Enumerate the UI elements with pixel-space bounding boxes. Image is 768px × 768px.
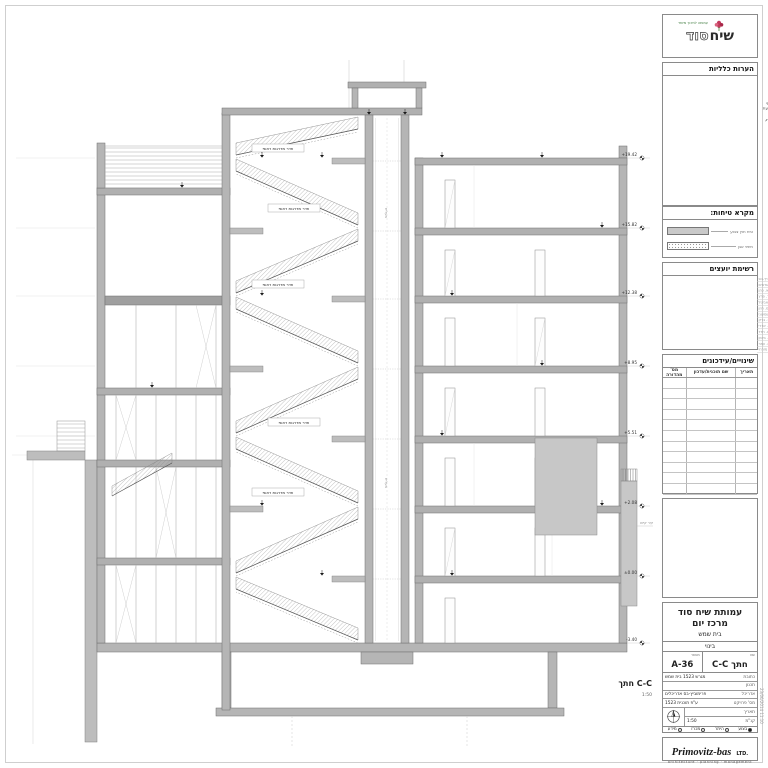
level-value: +19.42 xyxy=(622,152,638,157)
sheet-number-label: מספר xyxy=(691,653,700,657)
side-note: קיר קיים xyxy=(640,521,653,525)
revision-cell xyxy=(735,378,757,388)
radio-label: מכרז xyxy=(691,727,700,732)
scale-row: קנ"מ 1:50 xyxy=(685,717,757,726)
legend-leader-line xyxy=(711,231,728,232)
revision-row xyxy=(663,442,757,453)
consultants-box: רשימת יועצים אדריכלותפרימוביץ-בסקונסטרוק… xyxy=(662,262,758,350)
sheet-name-number-row: שם חתך C-C מספר A-36 xyxy=(663,652,757,673)
level-value: +5.51 xyxy=(624,430,637,435)
revision-cell xyxy=(686,410,736,420)
planning-label: תכנון xyxy=(746,683,755,688)
date-label: תאריך xyxy=(744,710,755,715)
date-scale-row: תאריך קנ"מ 1:50 xyxy=(663,708,757,727)
sheet-name-cell: שם חתך C-C xyxy=(702,652,757,672)
revision-cell xyxy=(735,442,757,452)
revision-cell xyxy=(686,431,736,441)
revision-cell xyxy=(663,463,686,473)
legend-row: טיח חוץ צבוע xyxy=(667,227,753,235)
stair-label: חדר מדרגות ראשי xyxy=(279,206,310,211)
radio-label: בצוע xyxy=(738,727,747,732)
project-stage: בינוי xyxy=(663,642,757,653)
revision-row xyxy=(663,420,757,431)
status-radio-מכרז[interactable]: מכרז xyxy=(691,727,705,732)
revision-cell xyxy=(663,442,686,452)
status-row: בצועהיתרמכרזמידע xyxy=(663,727,757,732)
stair-label: חדר מדרגות ראשי xyxy=(263,146,294,151)
finish-legend-box: מקרא טיחות: טיח חוץ צבוע חיפוי אבן xyxy=(662,206,758,258)
firm-box: Primovitz-bas LTD. architecture · planni… xyxy=(662,737,758,761)
revision-cell xyxy=(735,473,757,483)
stair-label: חדר מדרגות ראשי xyxy=(263,282,294,287)
status-radio-היתר[interactable]: היתר xyxy=(715,727,729,732)
section-scale: 1:50 xyxy=(642,692,652,698)
col-num: מס' מהדורה xyxy=(663,368,686,377)
project-name: מרכז יום xyxy=(663,619,757,631)
level-value: ±0.00 xyxy=(624,570,637,575)
legend-label: טיח חוץ צבוע xyxy=(730,229,753,234)
revision-cell xyxy=(735,399,757,409)
radio-dot[interactable] xyxy=(748,728,752,732)
revision-cell xyxy=(686,420,736,430)
revision-cell xyxy=(663,484,686,494)
scale-label: קנ"מ xyxy=(745,719,755,724)
revision-row xyxy=(663,399,757,410)
sheet-number-cell: מספר A-36 xyxy=(663,652,702,672)
revision-cell xyxy=(663,399,686,409)
revision-row xyxy=(663,410,757,421)
note-item: יש לבצע איטום ע"פ מפרט יועץ האיטום. xyxy=(757,140,768,145)
logo-box: עמותה לחינוך מיוחד שיח סוד xyxy=(662,14,758,58)
revision-row xyxy=(663,473,757,484)
revision-row xyxy=(663,431,757,442)
elevator-label: מעלית xyxy=(384,208,388,218)
consultants-table: אדריכלותפרימוביץ-בסקונסטרוקציהי. לוי מהנ… xyxy=(757,276,768,353)
address-row: כתובת מגרש 1523 בית שמש xyxy=(663,673,757,682)
right-wing xyxy=(415,146,627,643)
client-name: עמותת שיח סוד xyxy=(663,603,757,619)
level-value: +8.95 xyxy=(624,360,637,365)
date-scale-cells: תאריך קנ"מ 1:50 xyxy=(684,708,757,726)
notes-title: הערות כלליות xyxy=(663,63,757,76)
revision-cell xyxy=(735,389,757,399)
elevator-label: מעלית xyxy=(384,478,388,488)
revision-cell xyxy=(686,463,736,473)
status-radio-מידע[interactable]: מידע xyxy=(668,727,682,732)
notes-footer: תוכנית זו הינה רכוש המשרד. אין להעתיק, ל… xyxy=(760,148,768,163)
note-item: פרטי מעקות ומסעדים ראה גיליון פרטים. xyxy=(757,128,768,133)
sheet-name: חתך C-C xyxy=(703,660,757,670)
logo-tagline: עמותה לחינוך מיוחד xyxy=(678,21,708,25)
general-notes-box: הערות כלליות יש לקרוא תוכנית זו ביחד עם … xyxy=(662,62,758,206)
level-value: +15.82 xyxy=(622,222,638,227)
revision-cell xyxy=(663,410,686,420)
spare-box xyxy=(662,498,758,598)
revision-cell xyxy=(663,473,686,483)
revision-cell xyxy=(735,420,757,430)
revision-row xyxy=(663,463,757,474)
plaster-swatch xyxy=(667,227,709,235)
note-item: גמר קירות חוץ ע"פ מקרא טיחות וחזיתות. xyxy=(757,134,768,139)
elevator-shaft: מעלית מעלית xyxy=(365,115,409,643)
note-item: אין למדוד מתוכנית זו, המידות הקובעות הן … xyxy=(757,89,768,99)
project-number-label: מס' פרויקט xyxy=(734,701,755,706)
col-date: תאריך xyxy=(735,368,757,377)
revision-cell xyxy=(686,452,736,462)
left-wing xyxy=(97,143,230,643)
status-radio-בצוע[interactable]: בצוע xyxy=(738,727,752,732)
consultant-row: פיתוחב. מזרחי xyxy=(757,347,768,353)
project-number-value: ע"פ תוכנית 1523 xyxy=(665,701,698,706)
address-label: כתובת xyxy=(743,675,755,680)
stone-swatch xyxy=(667,242,709,250)
legend-leader-line xyxy=(711,246,736,247)
site-left xyxy=(27,421,97,742)
revision-cell xyxy=(686,399,736,409)
project-number-row: מס' פרויקט ע"פ תוכנית 1523 xyxy=(663,699,757,708)
project-city: בית שמש xyxy=(663,631,757,642)
address-value: מגרש 1523 בית שמש xyxy=(665,675,705,680)
sheet-number: A-36 xyxy=(663,660,702,670)
revision-cell xyxy=(663,431,686,441)
level-value: -3.40 xyxy=(626,637,637,642)
firm-name: Primovitz-bas xyxy=(672,747,732,758)
architect-label: אדריכל xyxy=(742,692,755,697)
revision-row xyxy=(663,484,757,495)
section-label: חתך C-C xyxy=(618,679,652,688)
plot-stamp: 23/06/2014 11:10 xyxy=(759,688,764,724)
stair-label: חדר מדרגות ראשי xyxy=(263,490,294,495)
note-item: על הקבלן לבדוק את כל המידות באתר לפני תח… xyxy=(757,101,768,116)
section-title: חתך C-C 1:50 xyxy=(618,679,652,698)
note-item: יש לקרוא תוכנית זו ביחד עם כל תוכניות הא… xyxy=(757,78,768,88)
legend-label: חיפוי אבן xyxy=(738,244,753,249)
level-value: +2.08 xyxy=(624,500,637,505)
revisions-header: תאריך שם תוכנית/עדכון מס' מהדורה xyxy=(663,368,757,378)
revision-cell xyxy=(735,484,757,494)
title-block: עמותת שיח סוד מרכז יום בית שמש בינוי שם … xyxy=(662,602,758,733)
building-section-drawing: מעלית מעלית xyxy=(12,58,657,758)
brand-word-1: שיח xyxy=(710,29,734,43)
revision-cell xyxy=(686,484,736,494)
scale-value: 1:50 xyxy=(687,719,697,724)
north-arrow-icon xyxy=(666,709,681,724)
note-item: כל המידות נתונות בס"מ אלא אם צוין אחרת, … xyxy=(757,117,768,127)
radio-dot[interactable] xyxy=(725,728,729,732)
revision-cell xyxy=(663,389,686,399)
revision-cell xyxy=(735,410,757,420)
revisions-box: שינויים/עידכונים תאריך שם תוכנית/עדכון מ… xyxy=(662,354,758,494)
radio-label: מידע xyxy=(668,727,677,732)
foundations xyxy=(97,643,627,746)
revision-cell xyxy=(686,473,736,483)
stairs: חדר מדרגות ראשי חדר מדרגות ראשי חדר מדרג… xyxy=(230,117,365,643)
revision-row xyxy=(663,452,757,463)
col-desc: שם תוכנית/עדכון xyxy=(686,368,736,377)
firm-name-line: Primovitz-bas LTD. xyxy=(663,740,757,759)
revision-cell xyxy=(686,442,736,452)
revision-cell xyxy=(735,431,757,441)
level-value: +12.38 xyxy=(622,290,638,295)
firm-suffix: LTD. xyxy=(736,751,748,757)
revision-row xyxy=(663,389,757,400)
revisions-title: שינויים/עידכונים xyxy=(663,355,757,368)
sheet-name-label: שם xyxy=(750,653,755,657)
revision-cell xyxy=(735,452,757,462)
date-row: תאריך xyxy=(685,708,757,718)
revision-row xyxy=(663,378,757,389)
radio-dot[interactable] xyxy=(678,728,682,732)
firm-tagline: architecture · planning · management xyxy=(663,760,757,764)
architect-row: אדריכל פרימוביץ-בס אדריכלים xyxy=(663,691,757,700)
revision-cell xyxy=(686,389,736,399)
legend-row: חיפוי אבן xyxy=(667,242,753,250)
radio-label: היתר xyxy=(715,727,724,732)
revision-cell xyxy=(663,378,686,388)
radio-dot[interactable] xyxy=(701,728,705,732)
revision-cell xyxy=(735,463,757,473)
revision-cell xyxy=(663,420,686,430)
compass-cell xyxy=(663,708,684,726)
flower-logo-icon xyxy=(712,19,726,31)
planning-row: תכנון xyxy=(663,682,757,691)
revision-cell xyxy=(663,452,686,462)
notes-content: יש לקרוא תוכנית זו ביחד עם כל תוכניות הא… xyxy=(757,78,768,163)
brand-word-2: סוד xyxy=(686,29,709,43)
revisions-rows xyxy=(663,378,757,495)
legend-title: מקרא טיחות: xyxy=(663,207,757,220)
consultants-title: רשימת יועצים xyxy=(663,263,757,276)
revision-cell xyxy=(686,378,736,388)
stair-label: חדר מדרגות ראשי xyxy=(279,420,310,425)
architect-value: פרימוביץ-בס אדריכלים xyxy=(665,692,706,697)
